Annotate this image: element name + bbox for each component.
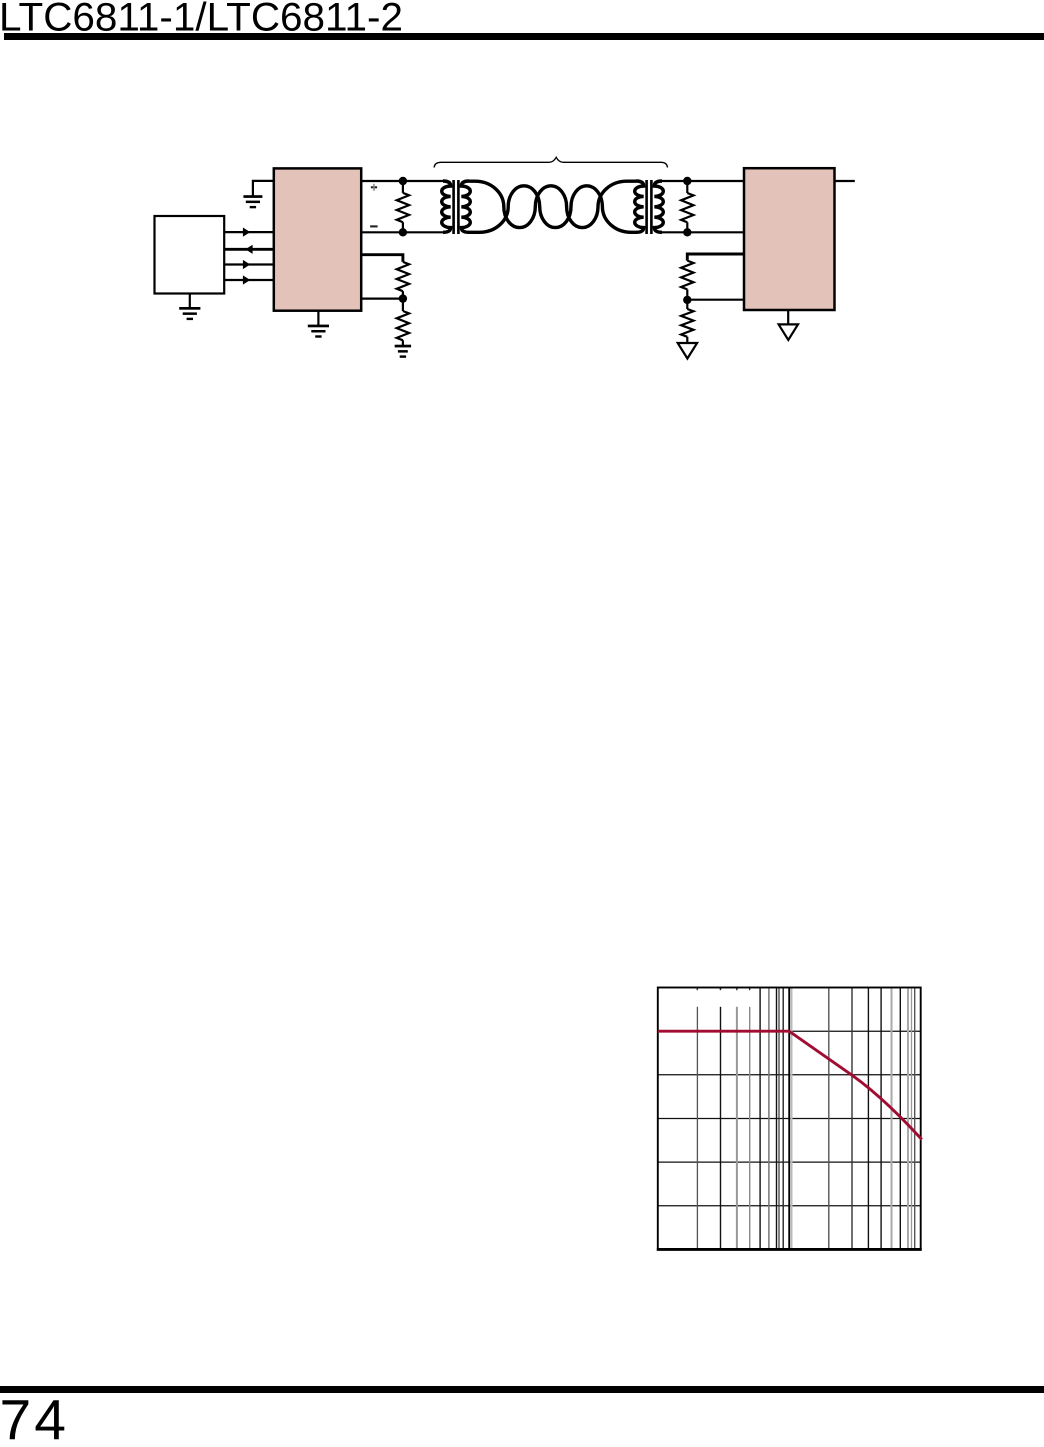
svg-text:74: 74 [0, 1389, 69, 1443]
